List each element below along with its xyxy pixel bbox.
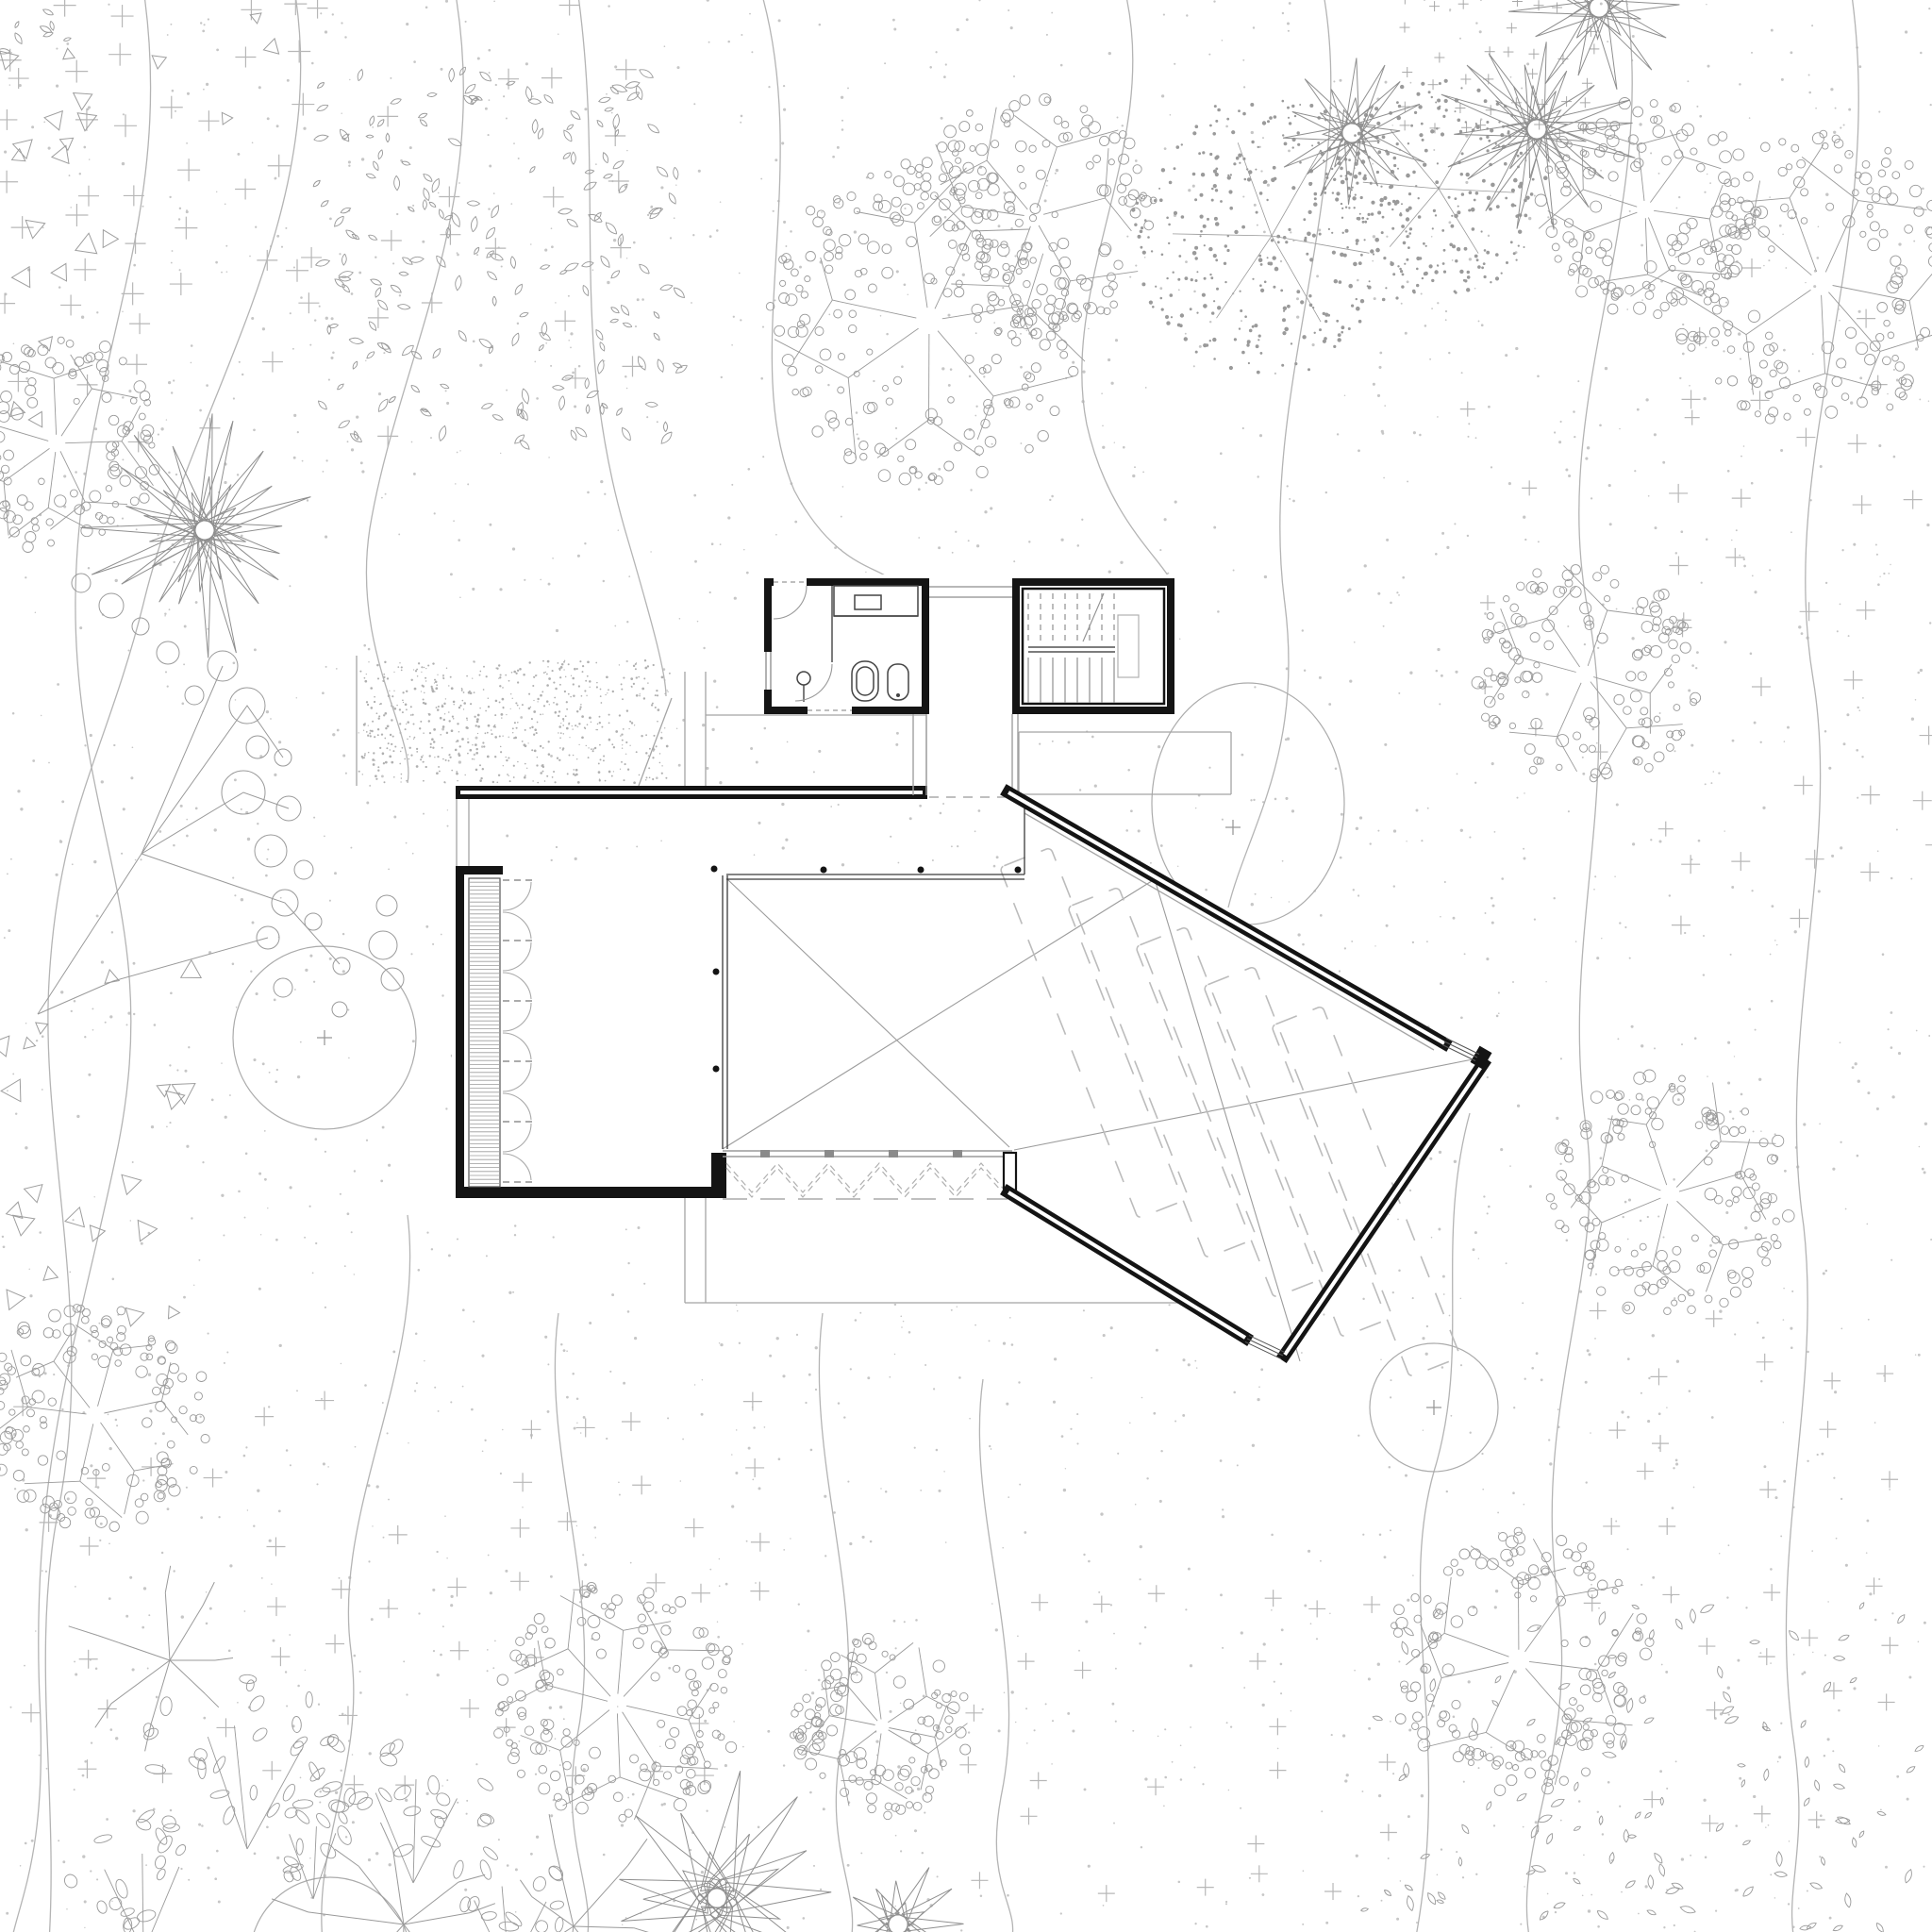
- leaf-scatter-bottomright: [1360, 1602, 1924, 1932]
- plus-field-midright: [1460, 402, 1700, 837]
- gravel-stipple-patch: [358, 659, 671, 784]
- ellipse-bushes: [62, 1674, 566, 1932]
- plus-field-bottomright: [1584, 1303, 1899, 1832]
- plus-field-bottomcenter: [959, 1585, 1397, 1902]
- plus-field-top-dense-small: [1399, 0, 1599, 139]
- triangle-scatter-left: [0, 51, 118, 427]
- shrub-trail: [38, 574, 404, 1017]
- bidet-drain-dot: [896, 693, 900, 697]
- plus-field-bottomleft: [13, 1391, 770, 1795]
- dot-trees: [1131, 79, 1547, 375]
- plus-field-topleft: [0, 0, 642, 452]
- building-floor-whites: [452, 575, 1483, 1358]
- triangle-scatter-left-lower: [0, 960, 201, 1326]
- leaf-scatter-corner: [0, 8, 72, 54]
- leaf-scatter-top: [312, 66, 689, 451]
- site-plan: Architectural site / floor plan drawing: [0, 0, 1932, 1932]
- site-plan-canvas: [0, 0, 1932, 1932]
- agave-plant: [620, 1771, 832, 1932]
